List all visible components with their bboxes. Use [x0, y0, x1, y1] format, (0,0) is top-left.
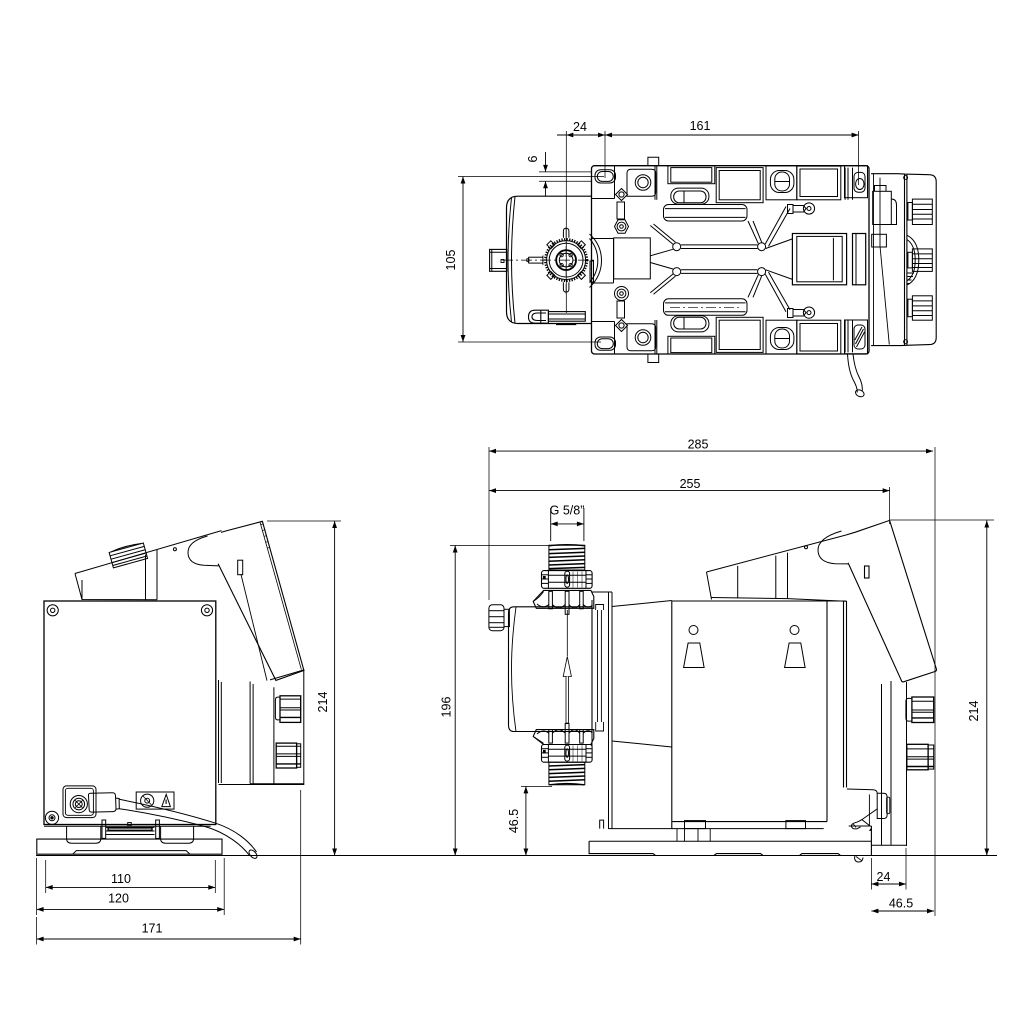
svg-text:110: 110 [111, 872, 131, 886]
svg-text:24: 24 [877, 870, 891, 884]
svg-text:196: 196 [440, 697, 454, 718]
svg-text:255: 255 [680, 477, 701, 491]
svg-text:G 5/8”: G 5/8” [550, 504, 585, 518]
svg-text:285: 285 [688, 437, 709, 451]
svg-text:214: 214 [967, 701, 981, 722]
svg-text:161: 161 [690, 119, 711, 133]
svg-text:171: 171 [142, 922, 163, 936]
svg-text:214: 214 [316, 692, 330, 713]
svg-text:46.5: 46.5 [889, 897, 913, 911]
svg-text:46.5: 46.5 [507, 809, 521, 833]
svg-text:120: 120 [108, 892, 129, 906]
svg-text:24: 24 [573, 120, 587, 134]
svg-text:105: 105 [444, 250, 458, 271]
svg-text:6: 6 [526, 155, 540, 162]
